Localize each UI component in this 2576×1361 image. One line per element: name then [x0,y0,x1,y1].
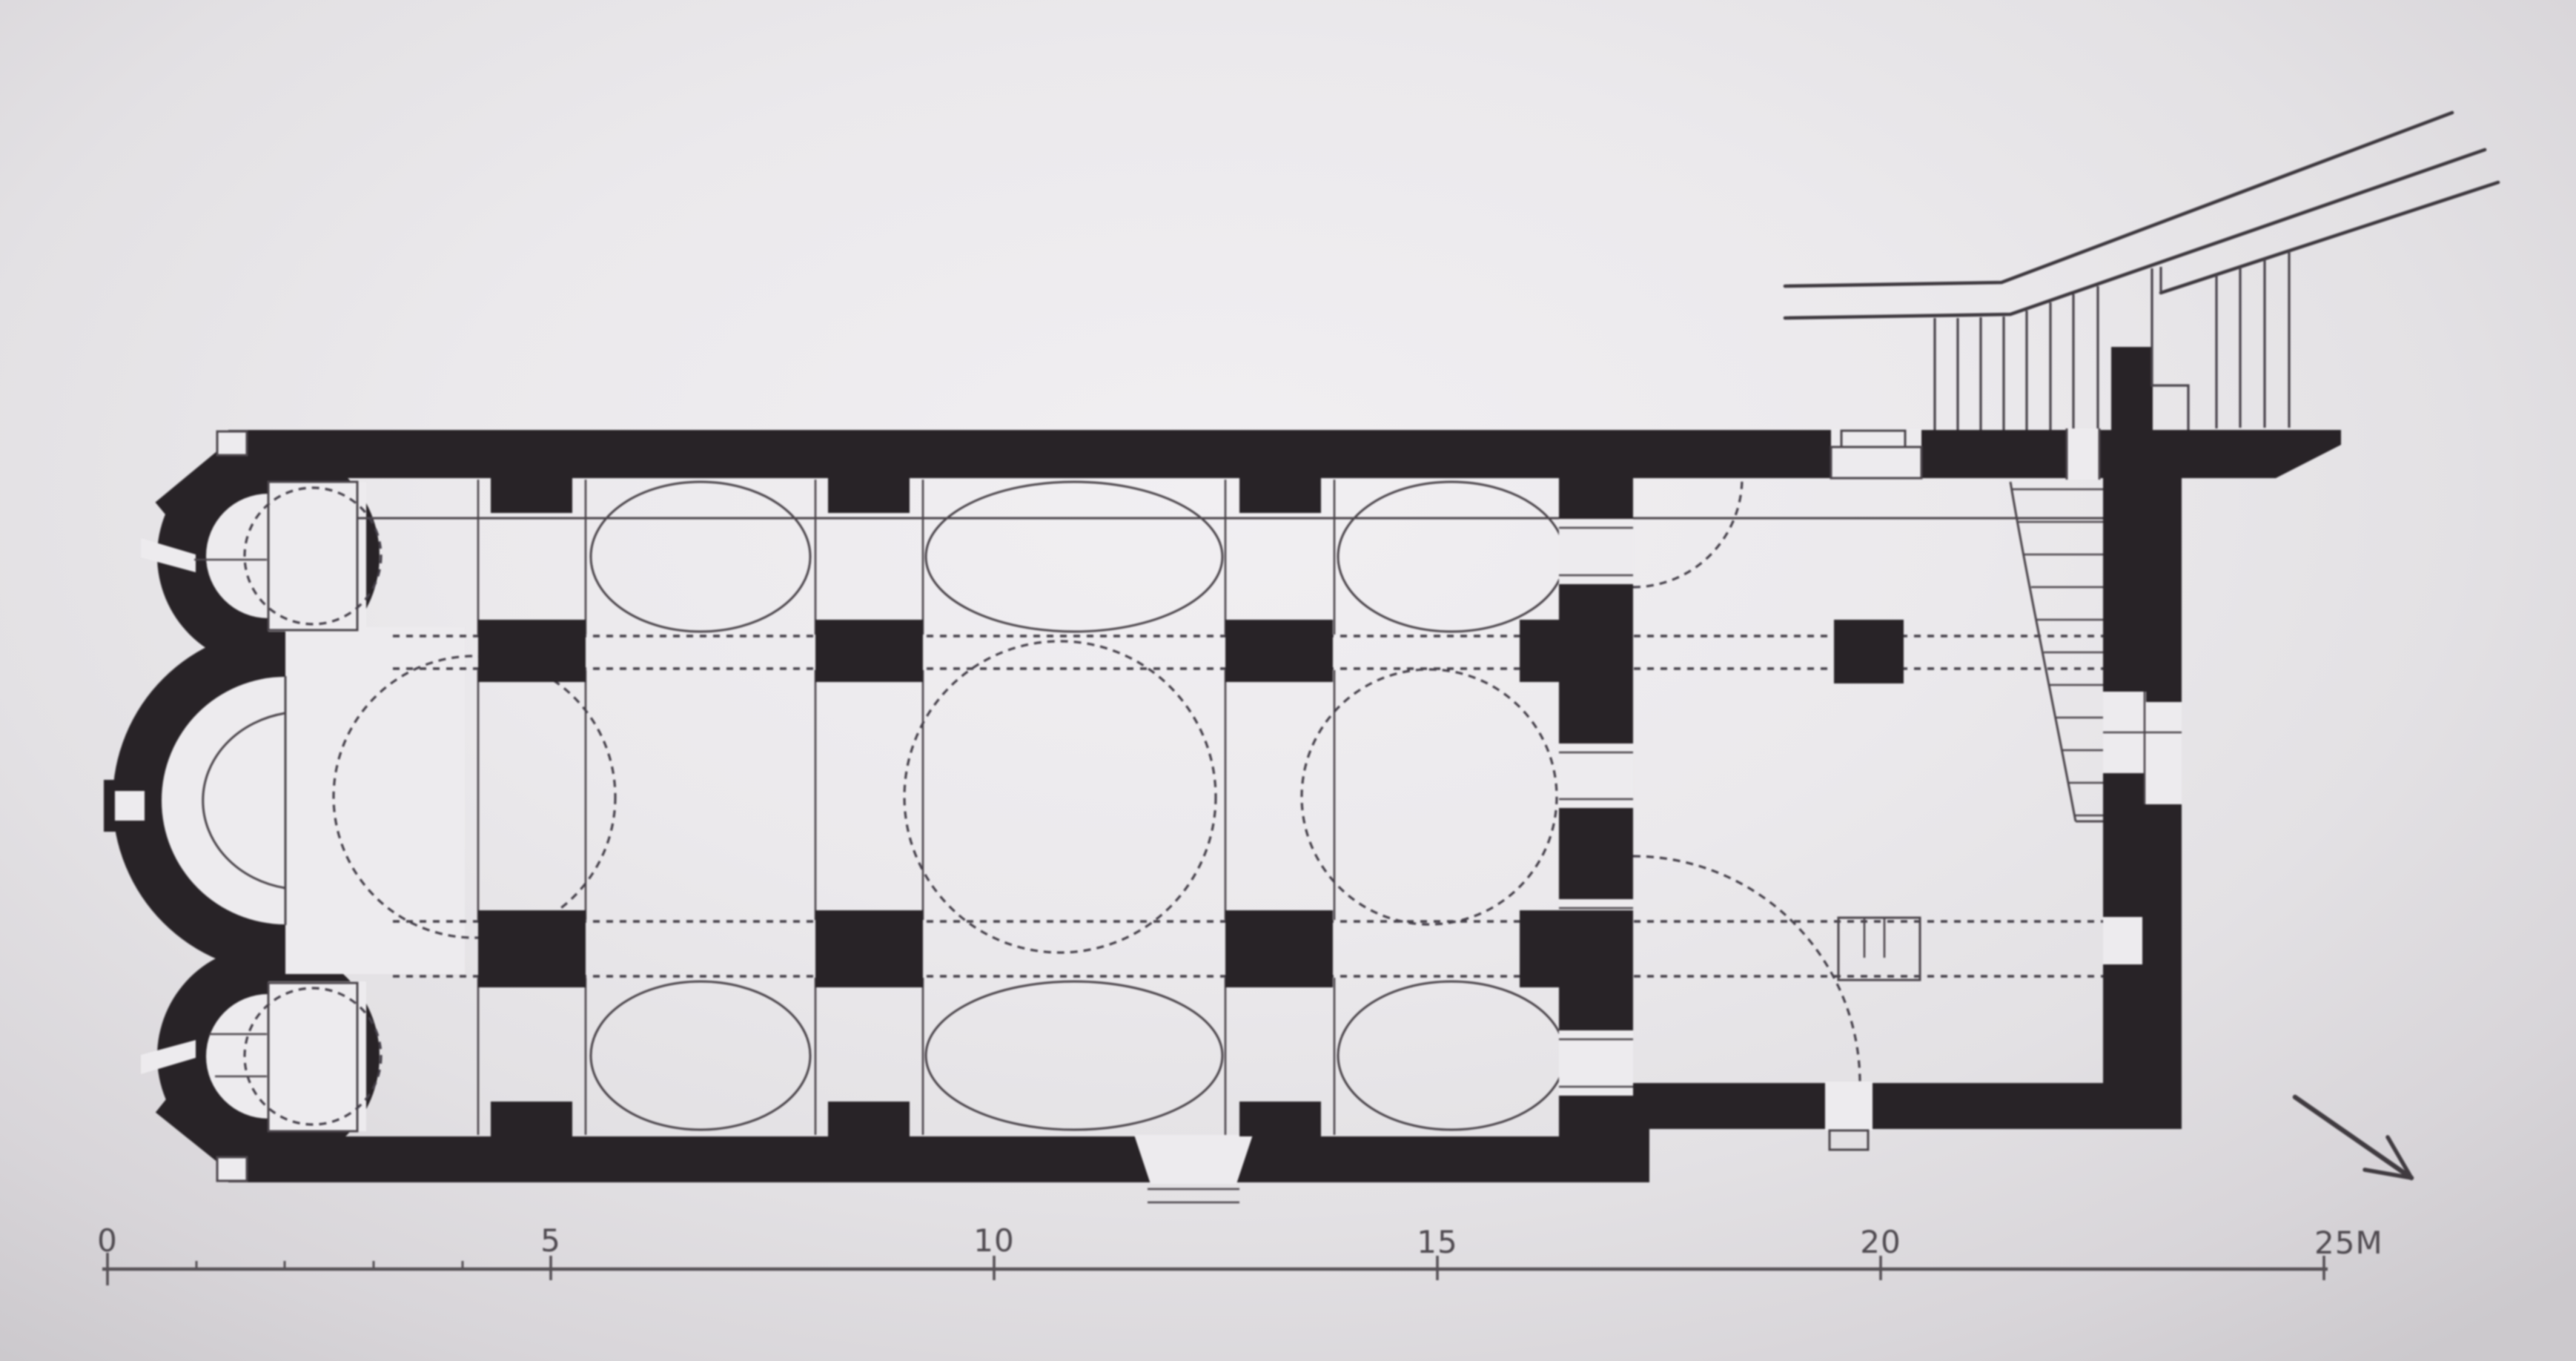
nave-dome-circle [904,641,1216,953]
south-arcade-pier [478,910,586,987]
bay-division-lines [478,480,1334,1135]
piers [478,478,1920,1136]
scale-label: 10 [973,1222,1014,1259]
scale-label: 20 [1860,1224,1901,1260]
scale-bar: 0 5 10 15 20 25M [97,1222,2383,1285]
central-apse-niche [104,780,156,832]
east-niche [2103,917,2142,964]
south-arcade-pier [1225,910,1333,987]
stair-door [2067,428,2099,480]
narthex-vault-arc [1633,478,1742,587]
north-wall-pilaster [1520,620,1633,682]
northeast-corner-pillar [2111,347,2153,432]
north-arcade-pier [1225,620,1333,682]
interior-linework [245,478,2103,1135]
south-aisle-vault [591,981,810,1130]
scale-label: 5 [540,1222,561,1259]
street-third-line [2161,182,2498,293]
south-arcade-pier [815,910,923,987]
south-aisle-vault [1338,981,1565,1130]
scale-label: 25M [2314,1225,2383,1261]
nave-dome-circle [1302,669,1557,924]
south-wall-pilaster [1520,910,1633,987]
north-aisle-vault [591,482,810,632]
north-arcade-pier [478,620,586,682]
north-arcade-pier [815,620,923,682]
scale-label: 0 [97,1222,118,1259]
narthex-north-door [1831,428,1921,480]
floor-plan-drawing: 0 5 10 15 20 25M [0,0,2576,1361]
south-aisle-vault [926,981,1222,1130]
street-upper-line [1785,113,2452,286]
staircase [2010,482,2103,821]
wall-stubs [491,478,1321,1136]
narthex-pier [1834,620,1904,683]
north-aisle-vault [926,482,1222,632]
scale-label: 15 [1417,1224,1457,1260]
narthex-pier-outline [1838,918,1920,980]
photographed-page: 0 5 10 15 20 25M [0,0,2576,1361]
walls [228,347,2341,1182]
north-aisle-vault [1338,482,1565,632]
narthex-south-wall [1572,1083,2182,1129]
north-arrow-icon [2295,1097,2411,1178]
naos-south-wall [228,1136,1649,1182]
narthex-south-door [1825,1082,1873,1130]
north-wall-extension [2182,430,2341,478]
naos-south-door [1134,1135,1253,1184]
narthex-vault-arc [1633,856,1860,1083]
